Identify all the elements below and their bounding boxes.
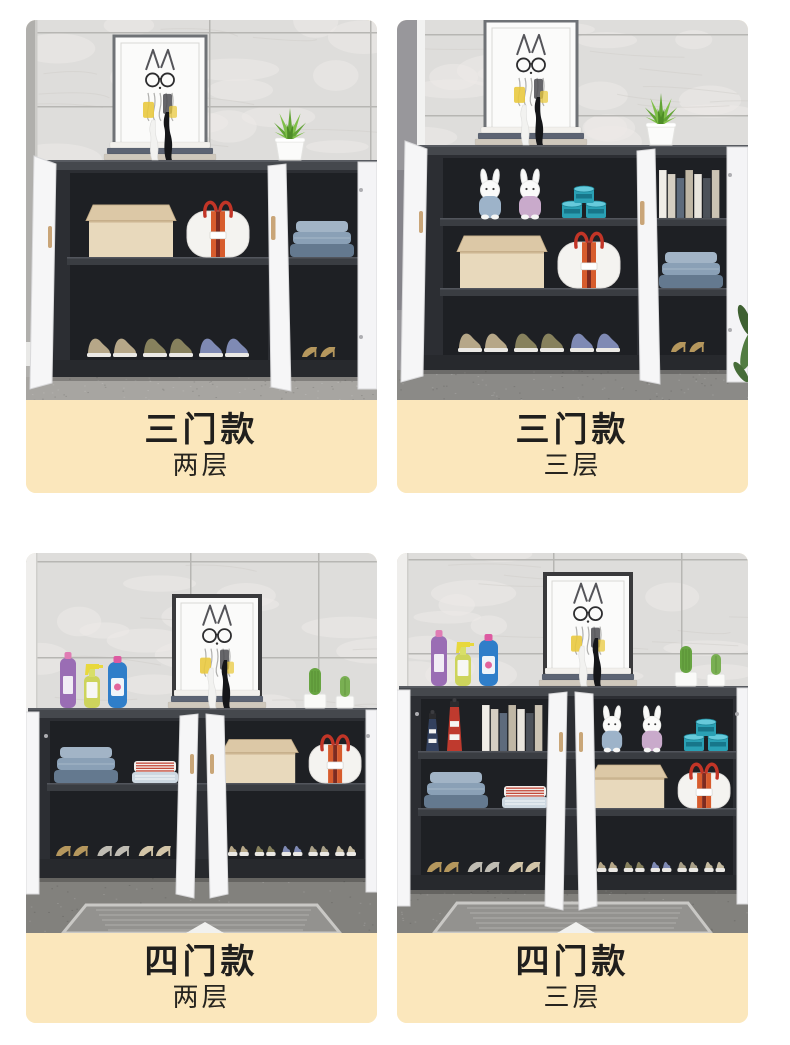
- storage-box: [591, 765, 667, 808]
- variant-card-three-door-two-layer: 三门款 两层: [26, 20, 377, 493]
- variant-card-three-door-three-layer: 三门款 三层: [397, 20, 748, 493]
- variant-subtitle: 两层: [172, 452, 230, 481]
- picture-frame-rabbit-art: [545, 574, 631, 684]
- book-stack: [539, 668, 637, 686]
- storage-box: [86, 205, 176, 257]
- picture-frame-rabbit-art: [114, 36, 206, 158]
- variant-title: 三门款: [516, 412, 630, 449]
- picture-frame-rabbit-art: [174, 596, 260, 706]
- striped-folded-clothes: [132, 761, 178, 783]
- picture-frame-rabbit-art: [485, 21, 577, 143]
- area-rug: [434, 903, 711, 933]
- variant-label: 四门款 两层: [26, 933, 377, 1023]
- variant-label: 三门款 三层: [397, 400, 748, 493]
- book-stack: [475, 127, 587, 145]
- storage-box: [457, 236, 547, 288]
- area-rug: [63, 905, 340, 933]
- book-stack: [104, 142, 216, 160]
- book-stack: [168, 690, 266, 708]
- cabinet-scene-3door-3layer: [397, 20, 748, 400]
- floor: [397, 370, 748, 400]
- variant-label: 四门款 三层: [397, 933, 748, 1023]
- folded-blue-clothes: [659, 252, 723, 288]
- variant-subtitle: 三层: [543, 452, 601, 481]
- striped-folded-clothes: [502, 786, 548, 808]
- variant-subtitle: 三层: [543, 984, 601, 1013]
- storage-box: [222, 739, 298, 783]
- cabinet-scene-4door-2layer: [26, 553, 377, 933]
- variant-title: 四门款: [145, 944, 259, 981]
- folded-blue-clothes: [424, 772, 488, 808]
- folded-blue-clothes: [290, 221, 354, 257]
- cabinet-scene-3door-2layer: [26, 20, 377, 400]
- cabinet-scene-4door-3layer: [397, 553, 748, 933]
- variant-card-four-door-two-layer: 四门款 两层: [26, 553, 377, 1023]
- variant-title: 三门款: [145, 412, 259, 449]
- variant-label: 三门款 两层: [26, 400, 377, 493]
- folded-blue-clothes: [54, 747, 118, 783]
- variant-subtitle: 两层: [172, 984, 230, 1013]
- variant-card-four-door-three-layer: 四门款 三层: [397, 553, 748, 1023]
- variant-title: 四门款: [516, 944, 630, 981]
